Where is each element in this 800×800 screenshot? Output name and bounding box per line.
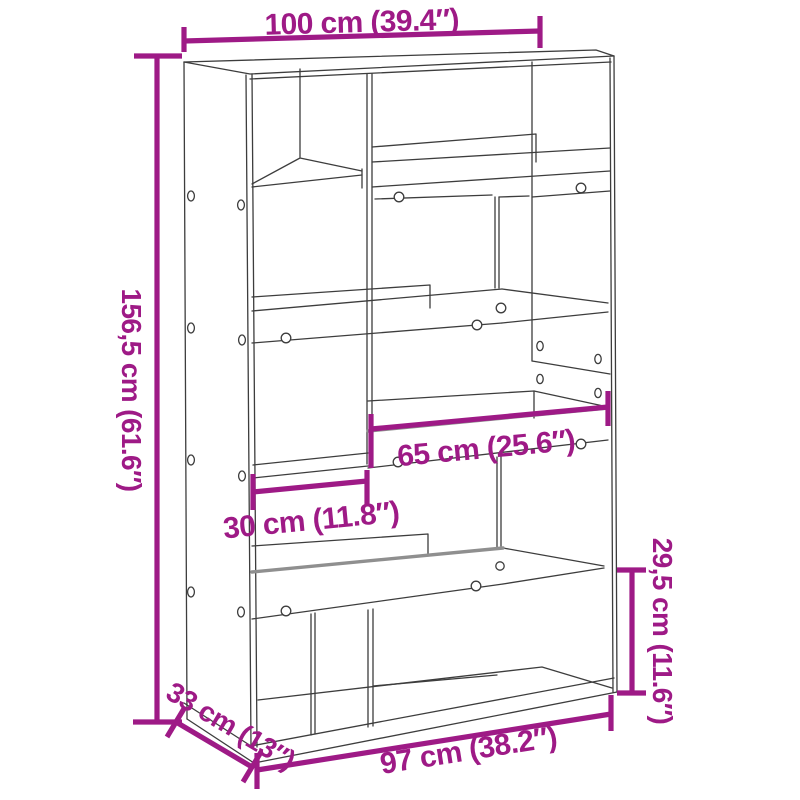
dimension-label-width-top: 100 cm (39.4″) xyxy=(264,3,459,41)
shelf-level-left-small xyxy=(253,453,368,478)
diagram-canvas: 100 cm (39.4″) 156,5 cm (61.6″) 65 cm (2… xyxy=(0,0,800,800)
dimension-line xyxy=(253,481,367,492)
carcass-outline xyxy=(184,50,617,763)
vertical-dividers xyxy=(300,62,610,735)
shelf-level-2 xyxy=(252,285,608,343)
dimension-height-left: 156,5 cm (61.6″) xyxy=(116,56,182,722)
dimension-width-bottom: 97 cm (38.2″) xyxy=(257,695,611,789)
dimension-compartment-height-right: 29,5 cm (11.6″) xyxy=(617,538,678,725)
dimension-label-height-left: 156,5 cm (61.6″) xyxy=(116,288,147,491)
dimension-shelf-width-right: 65 cm (25.6″) xyxy=(371,391,608,473)
product-dimension-diagram: 100 cm (39.4″) 156,5 cm (61.6″) 65 cm (2… xyxy=(0,0,800,800)
dimension-label-width-bottom: 97 cm (38.2″) xyxy=(378,720,559,780)
dimension-annotations: 100 cm (39.4″) 156,5 cm (61.6″) 65 cm (2… xyxy=(116,3,678,789)
dimension-label-shelf-width-right: 65 cm (25.6″) xyxy=(396,424,577,473)
shelf-level-1 xyxy=(252,134,610,199)
dimension-label-compartment-height-right: 29,5 cm (11.6″) xyxy=(647,538,678,725)
dimension-width-top: 100 cm (39.4″) xyxy=(184,3,540,52)
bookcase-line-drawing xyxy=(184,50,617,763)
